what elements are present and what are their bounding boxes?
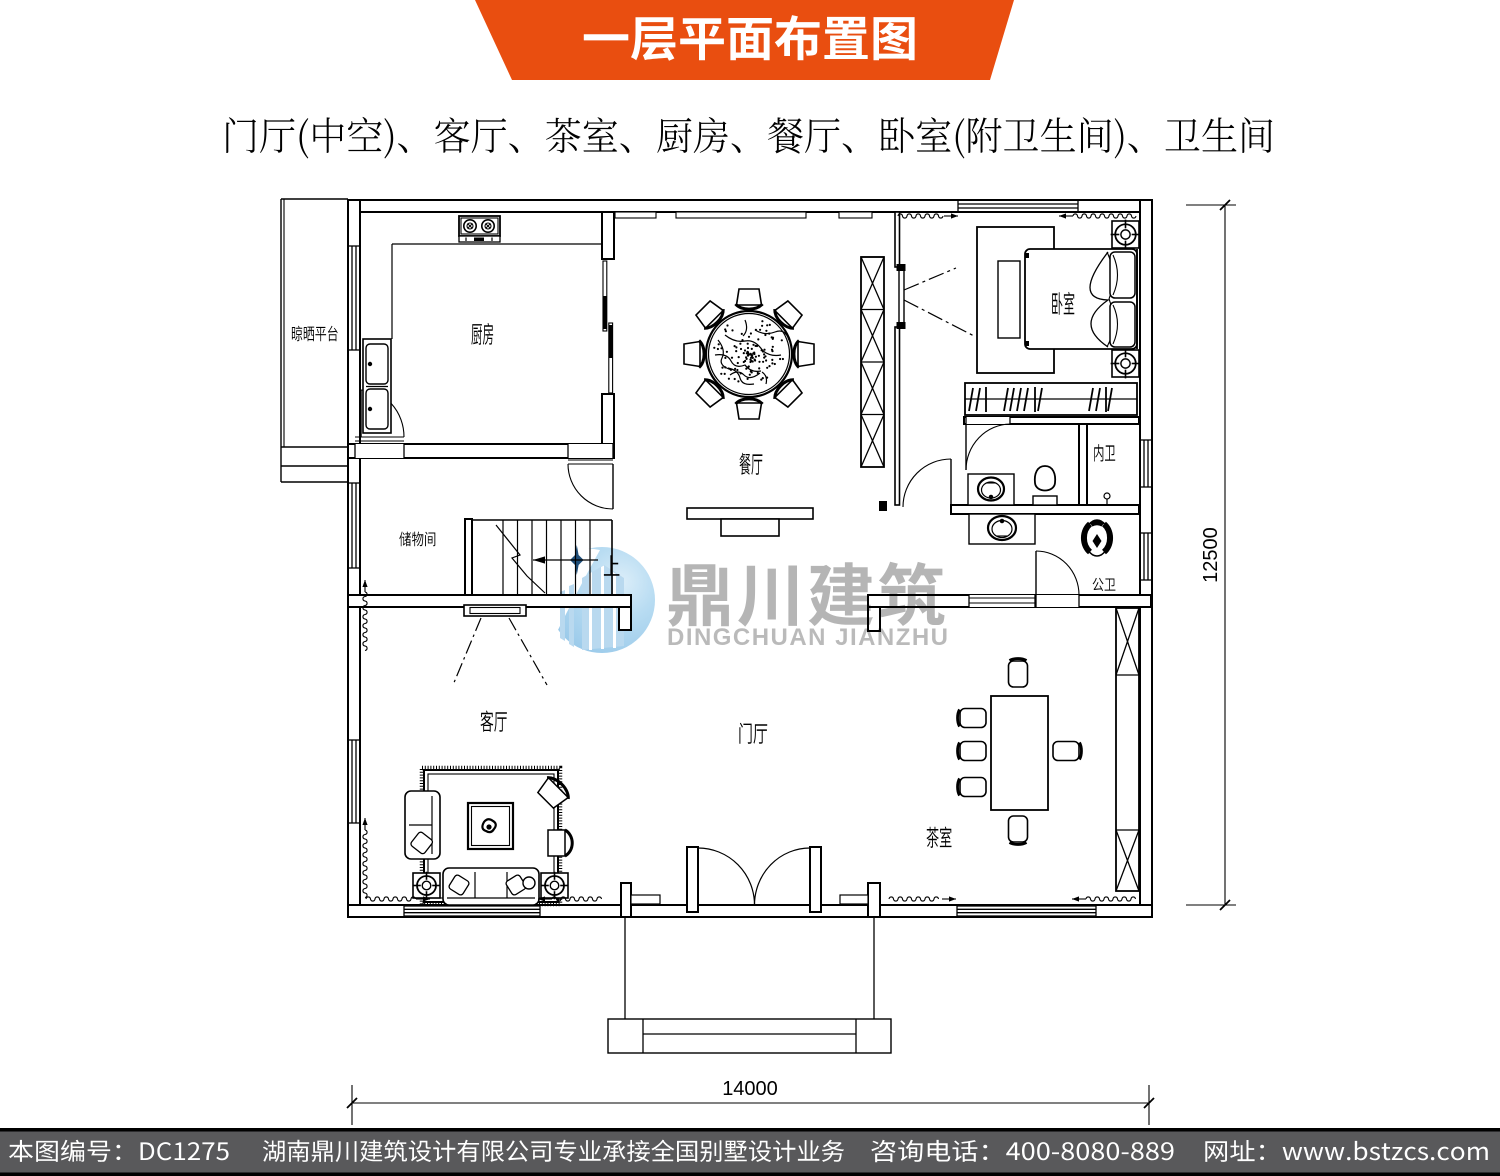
svg-text:14000: 14000	[722, 1078, 778, 1100]
svg-text:12500: 12500	[1200, 527, 1222, 583]
svg-text:DINGCHUAN JIANZHU: DINGCHUAN JIANZHU	[667, 624, 948, 651]
